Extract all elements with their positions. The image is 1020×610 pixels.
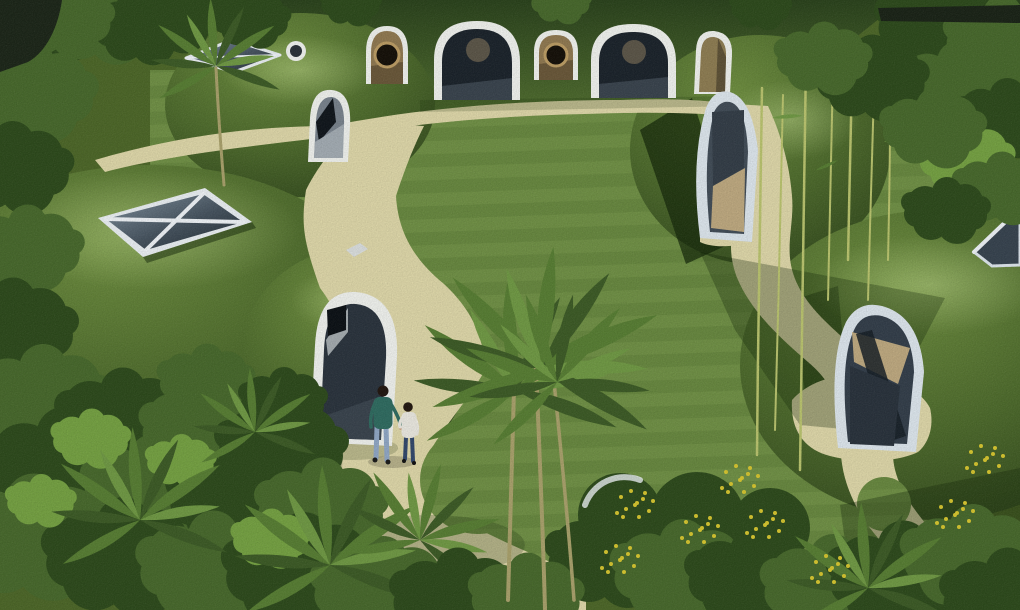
rendered-scene	[0, 0, 1020, 610]
eco-village-rendering	[0, 0, 1020, 610]
grain-texture-light	[0, 0, 1020, 610]
